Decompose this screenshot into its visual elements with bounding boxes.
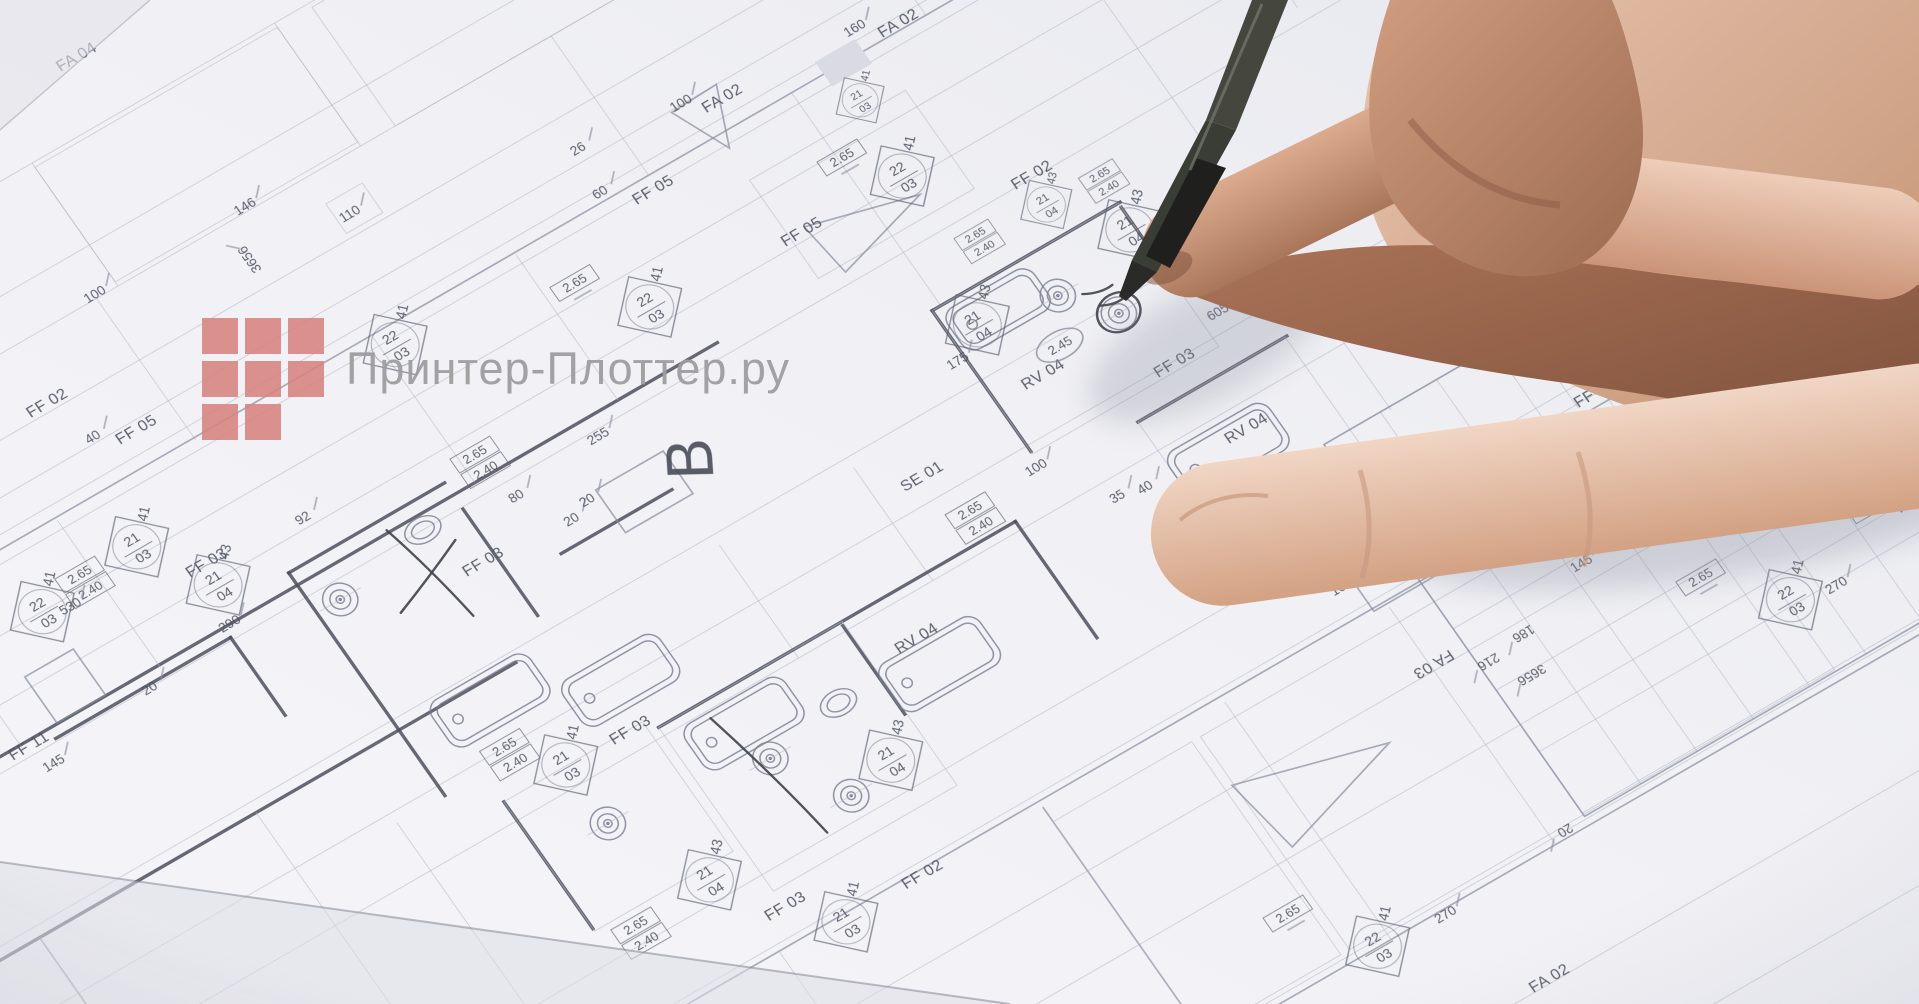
logo-square (245, 361, 281, 397)
watermark-text: Принтер-Плоттер.ру (346, 343, 790, 395)
watermark-logo-icon (202, 318, 324, 440)
logo-square (288, 361, 324, 397)
logo-square (288, 318, 324, 354)
logo-square (202, 361, 238, 397)
logo-square-empty (288, 404, 324, 440)
photo-of-blueprint: FA 04FA 02FA 02FA 02FA 03FF 02FF 02FF 02… (0, 0, 1919, 1004)
watermark: Принтер-Плоттер.ру (202, 318, 790, 440)
logo-square (202, 318, 238, 354)
blueprint-photo-canvas: FA 04FA 02FA 02FA 02FA 03FF 02FF 02FF 02… (0, 0, 1919, 1004)
logo-square (245, 318, 281, 354)
logo-square (202, 404, 238, 440)
logo-square (245, 404, 281, 440)
